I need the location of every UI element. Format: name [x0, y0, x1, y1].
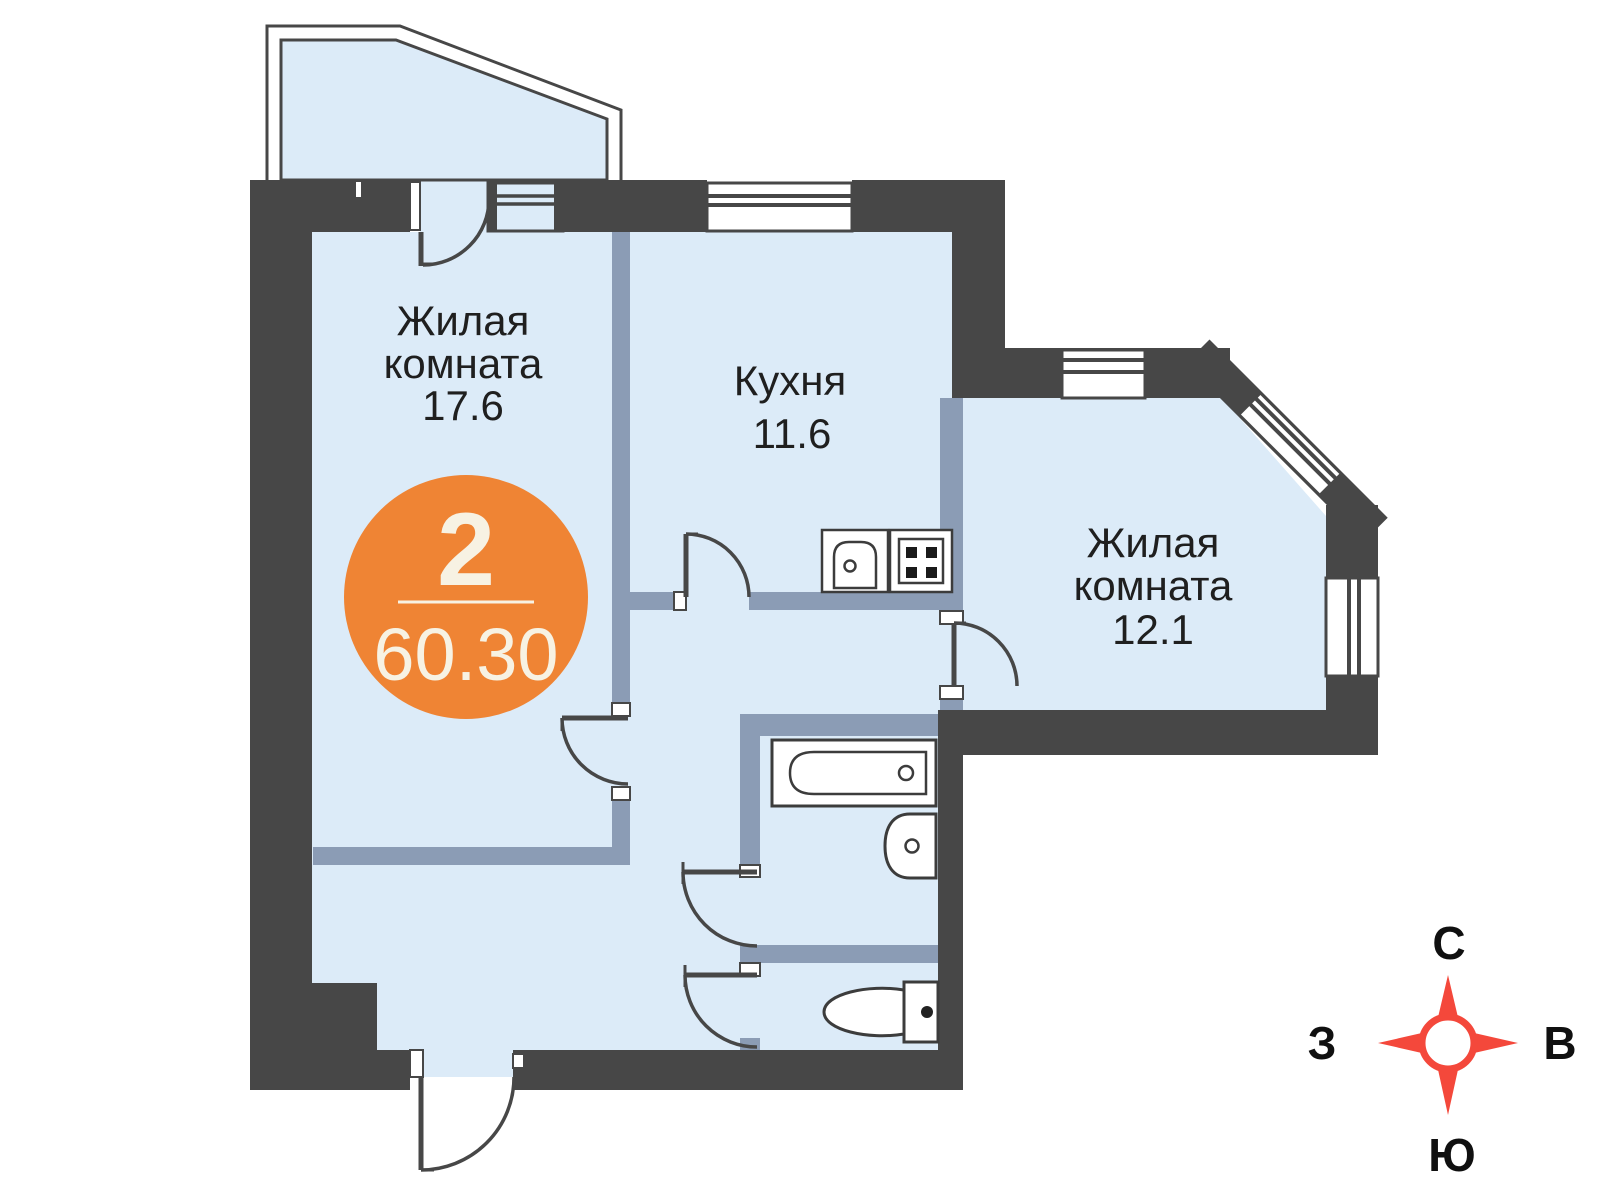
room1-label-line1: Жилая [397, 297, 530, 344]
area-badge: 2 60.30 [344, 475, 588, 719]
room2-top-window [1062, 350, 1145, 398]
room2-label-line2: комната [1074, 562, 1233, 609]
bathtub-icon [772, 740, 936, 806]
kitchen-label: Кухня [734, 357, 846, 404]
wall-left [250, 180, 312, 1090]
wall-step-block [312, 983, 377, 1050]
wall-bottom-b [513, 1050, 963, 1090]
wall-top-c [852, 180, 1005, 232]
jamb [513, 1054, 524, 1068]
kitchen-window [707, 183, 852, 231]
jamb [410, 182, 420, 230]
jamb [612, 787, 630, 800]
partition-bath-left [740, 736, 760, 865]
compass-hub [1422, 1017, 1474, 1069]
balcony [267, 26, 621, 180]
kitchen-sink-icon [822, 530, 888, 592]
room2-label-line1: Жилая [1087, 519, 1220, 566]
compass-west-label: З [1308, 1017, 1337, 1069]
wall-kitchen-right [952, 232, 1005, 398]
compass-north-label: С [1432, 917, 1465, 969]
room2-area: 12.1 [1112, 606, 1194, 653]
wall-bath-right [938, 710, 963, 1090]
wall-top-b [563, 180, 707, 232]
floorplan-page: Жилая комната 17.6 Кухня 11.6 Жилая комн… [0, 0, 1600, 1200]
room2-side-window [1326, 578, 1378, 676]
jamb [355, 181, 362, 198]
balcony-inner-area [281, 40, 607, 180]
partition-kitchen-bottom-a [612, 592, 676, 610]
jamb [410, 1050, 423, 1077]
jamb [612, 703, 630, 716]
partition-room1-right [612, 232, 630, 703]
kitchen-area: 11.6 [753, 410, 832, 457]
jamb [940, 686, 963, 699]
badge-total-area: 60.30 [373, 613, 558, 696]
wall-bottom-a [250, 1050, 410, 1090]
room1-area: 17.6 [422, 382, 504, 429]
wall-room2-bottom [943, 710, 1378, 755]
entry-door-floor [423, 1050, 513, 1077]
compass: С В З Ю [1308, 917, 1577, 1181]
balcony-door-floor [420, 180, 488, 232]
floorplan-svg: Жилая комната 17.6 Кухня 11.6 Жилая комн… [0, 0, 1600, 1200]
badge-room-count: 2 [437, 492, 495, 608]
compass-south-label: Ю [1428, 1129, 1475, 1181]
compass-east-label: В [1543, 1017, 1576, 1069]
partition-room1-bottom [313, 847, 630, 865]
partition-bath-wc [740, 945, 938, 963]
entry-door [421, 1077, 514, 1170]
partition-kitchen-bottom-b [749, 592, 952, 610]
washbasin-icon [885, 814, 936, 878]
balcony-side-window [488, 183, 563, 231]
room1-label-line2: комната [384, 340, 543, 387]
partition-bath-top [740, 714, 938, 736]
stove-icon [890, 530, 952, 592]
partition-hall-room2-stub [940, 699, 963, 710]
